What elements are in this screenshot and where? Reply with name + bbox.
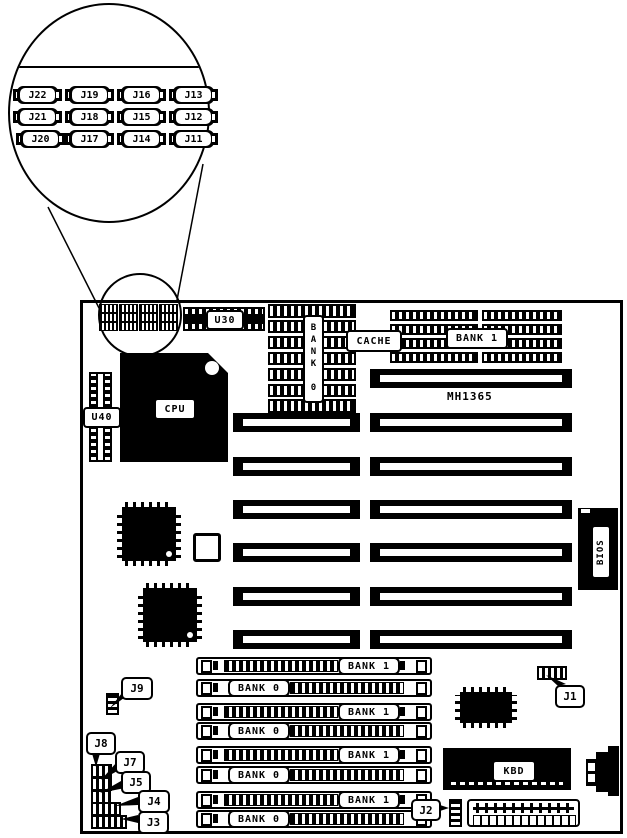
jumper-bracket [56, 111, 62, 123]
bank0-label: BANK 0 [303, 315, 324, 403]
jumper-bracket [160, 133, 166, 145]
simm-socket-8: BANK 0 [196, 810, 432, 828]
isa-slot [370, 587, 572, 606]
jumper-label: J22 [20, 88, 55, 102]
j1-pins [537, 666, 567, 680]
power-connector [467, 799, 580, 827]
jumper-label: J17 [72, 132, 107, 146]
j7-pins [91, 777, 112, 791]
power-pin-boxes [473, 815, 576, 826]
jumper-j22: J22 [13, 86, 62, 104]
plcc-socket [193, 533, 221, 562]
jumper-bracket [212, 133, 218, 145]
j9-pins [106, 693, 119, 715]
callout-j2: J2 [411, 799, 441, 821]
pin1-dot [166, 551, 172, 557]
callout-j1: J1 [555, 685, 585, 708]
jumper-label: J13 [176, 88, 211, 102]
jumper-label: J19 [72, 88, 107, 102]
isa-slot [370, 500, 572, 519]
callout-j3: J3 [138, 811, 169, 834]
bank1-label: BANK 1 [446, 328, 508, 349]
simm-socket-4: BANK 0 [196, 722, 432, 740]
jumper-label: J20 [23, 132, 58, 146]
u40-label: U40 [83, 407, 121, 428]
motherboard-diagram: J22 J19 J16 J13 J21 J18 J15 J12 J20 J17 … [0, 0, 627, 838]
din-pin [588, 774, 595, 782]
j8-pins [91, 764, 112, 778]
jumper-bracket [108, 133, 114, 145]
pin1-dot [187, 632, 193, 638]
jumper-bracket [212, 111, 218, 123]
simm-bank-label: BANK 1 [338, 746, 400, 764]
jumper-j13: J13 [169, 86, 218, 104]
isa-slot [233, 543, 360, 562]
qfp-chip-c [455, 687, 517, 728]
u30-label: U30 [206, 310, 244, 330]
jumper-bracket [160, 89, 166, 101]
isa-slot [233, 413, 360, 432]
simm-socket-2: BANK 0 [196, 679, 432, 697]
model-text: MH1365 [447, 390, 493, 403]
callout-j9: J9 [121, 677, 153, 700]
din-pin [588, 763, 595, 771]
callout-j4: J4 [138, 790, 170, 813]
jumper-label: J12 [176, 110, 211, 124]
isa-slot [233, 500, 360, 519]
simm-socket-5: BANK 1 [196, 746, 432, 764]
simm-socket-7: BANK 1 [196, 791, 432, 809]
jumper-j16: J16 [117, 86, 166, 104]
simm-bank-label: BANK 0 [228, 679, 290, 697]
callout-j8: J8 [86, 732, 116, 755]
jumper-j20: J20 [16, 130, 65, 148]
jumper-j12: J12 [169, 108, 218, 126]
jumper-bracket [108, 89, 114, 101]
isa-slot [370, 543, 572, 562]
board-edge-line-magnified [10, 66, 208, 68]
jumper-bracket [212, 89, 218, 101]
isa-slot [233, 457, 360, 476]
simm-socket-1: BANK 1 [196, 657, 432, 675]
jumper-label: J11 [176, 132, 211, 146]
bios-notch [581, 509, 590, 513]
simm-bank-label: BANK 1 [338, 657, 400, 675]
jumper-j14: J14 [117, 130, 166, 148]
simm-bank-label: BANK 1 [338, 703, 400, 721]
simm-bank-label: BANK 0 [228, 766, 290, 784]
jumper-label: J21 [20, 110, 55, 124]
cache-label: CACHE [346, 330, 402, 352]
j3-pins [91, 815, 127, 829]
jumper-j11: J11 [169, 130, 218, 148]
qfp-chip-b [138, 583, 202, 647]
jumper-label: J18 [72, 110, 107, 124]
magnifier-line-left [48, 207, 100, 310]
jumper-j18: J18 [65, 108, 114, 126]
j4-pins [91, 802, 121, 816]
isa-slot [233, 587, 360, 606]
jumper-label: J16 [124, 88, 159, 102]
simm-socket-6: BANK 0 [196, 766, 432, 784]
qfp-chip-a [117, 502, 181, 566]
jumper-bracket [56, 89, 62, 101]
isa-slot [233, 630, 360, 649]
jumper-j15: J15 [117, 108, 166, 126]
j2-pins [449, 799, 462, 827]
kbd-label: KBD [492, 760, 536, 782]
isa-slot [370, 457, 572, 476]
cpu-label: CPU [154, 398, 196, 420]
isa-slot [370, 413, 572, 432]
isa-slot [370, 630, 572, 649]
simm-bank-label: BANK 1 [338, 791, 400, 809]
jumper-j21: J21 [13, 108, 62, 126]
jumper-j17: J17 [65, 130, 114, 148]
bios-label: BIOS [591, 525, 611, 579]
simm-bank-label: BANK 0 [228, 722, 290, 740]
simm-socket-3: BANK 1 [196, 703, 432, 721]
cpu-pin1-dot [205, 361, 219, 375]
jumper-bracket [108, 111, 114, 123]
simm-bank-label: BANK 0 [228, 810, 290, 828]
jumper-j19: J19 [65, 86, 114, 104]
isa-slot [370, 369, 572, 388]
jumper-label: J14 [124, 132, 159, 146]
jumper-label: J15 [124, 110, 159, 124]
jumper-bracket [160, 111, 166, 123]
kbd-dashed-line [451, 782, 563, 785]
power-pins [473, 803, 574, 813]
